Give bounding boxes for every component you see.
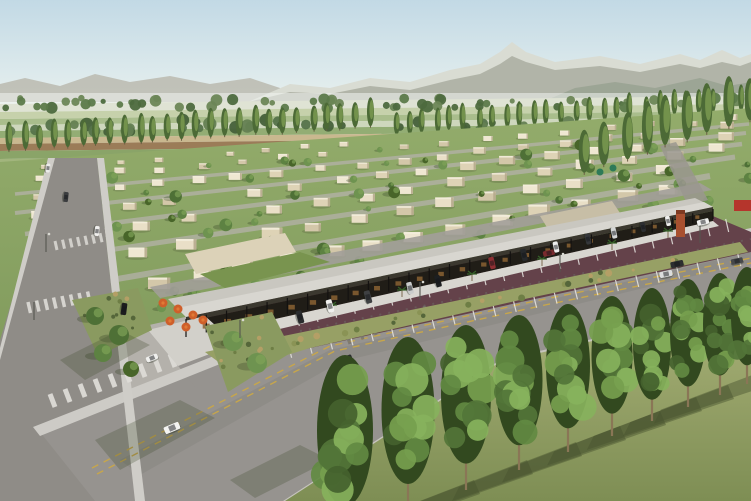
- round-tree-highlight: [128, 232, 134, 238]
- distant-tree: [477, 99, 484, 106]
- house-roof-edge: [670, 138, 685, 140]
- cafe-umbrella-top: [191, 313, 194, 316]
- monument-sign: [676, 210, 685, 237]
- house-shaded-side: [324, 165, 325, 170]
- house-shaded-side: [722, 143, 724, 151]
- storefront-glow: [503, 258, 508, 262]
- house-roof-edge: [362, 240, 382, 242]
- house-shaded-side: [144, 248, 147, 258]
- car-glass: [64, 195, 68, 200]
- street-light-head: [48, 233, 51, 236]
- shrub: [258, 347, 263, 352]
- crosswalk-stripe: [55, 241, 57, 250]
- shrub: [271, 347, 274, 350]
- house-roof-edge: [483, 136, 492, 137]
- shrub: [219, 359, 222, 362]
- poplar-highlight: [663, 100, 670, 133]
- cafe-umbrella-top: [184, 325, 187, 328]
- distant-tree: [241, 119, 254, 132]
- house-shaded-side: [163, 168, 164, 173]
- architectural-rendering: [0, 0, 751, 501]
- poplar-foliage: [467, 419, 489, 441]
- house-shaded-side: [280, 205, 282, 213]
- rendering-canvas: [0, 0, 751, 501]
- poplar-foliage: [689, 337, 703, 351]
- house-roof-edge: [148, 278, 170, 280]
- storefront-glow: [331, 295, 337, 300]
- round-tree-highlight: [558, 197, 562, 201]
- shrub: [605, 270, 612, 277]
- house-shaded-side: [300, 183, 302, 190]
- cafe-umbrella-top: [201, 318, 204, 321]
- distant-tree: [62, 97, 70, 105]
- shrub: [125, 296, 130, 301]
- round-tree-highlight: [118, 327, 128, 337]
- distant-tree: [393, 103, 401, 111]
- poplar-foliage: [643, 350, 661, 368]
- house-shaded-side: [124, 161, 125, 165]
- house-roof-edge: [538, 168, 553, 169]
- house-shaded-side: [194, 214, 196, 222]
- poplar-foliage: [674, 363, 689, 378]
- distant-tree: [310, 98, 317, 105]
- poplar-highlight: [255, 108, 259, 127]
- round-tree-highlight: [102, 345, 111, 354]
- house-shaded-side: [426, 169, 428, 175]
- poplar-foliage: [641, 372, 660, 391]
- poplar-highlight: [268, 111, 272, 128]
- round-tree-highlight: [111, 173, 117, 179]
- round-tree-highlight: [307, 159, 311, 163]
- shrub: [221, 364, 226, 369]
- house-roof-edge: [528, 204, 550, 206]
- distant-tree: [186, 103, 195, 112]
- round-tree-highlight: [368, 206, 371, 209]
- crosswalk-stripe: [54, 298, 57, 309]
- crosswalk-stripe: [85, 236, 87, 245]
- poplar-foliage: [554, 364, 574, 384]
- distant-tree: [33, 103, 41, 111]
- poplar-highlight: [560, 104, 564, 119]
- round-tree-highlight: [442, 161, 447, 166]
- house-roof-edge: [154, 168, 164, 169]
- round-tree-highlight: [225, 219, 231, 225]
- house-shaded-side: [204, 176, 206, 183]
- house-roof-edge: [114, 168, 125, 169]
- storefront-glow: [460, 267, 465, 271]
- street-light-head: [562, 253, 565, 256]
- shrub: [111, 315, 115, 319]
- distant-tree: [318, 93, 329, 104]
- house-roof-edge: [152, 180, 164, 181]
- round-tree-highlight: [639, 183, 642, 186]
- crosswalk-stripe: [100, 233, 102, 242]
- house-roof-edge: [266, 205, 282, 207]
- round-tree-highlight: [116, 222, 121, 227]
- poplar-highlight: [124, 117, 128, 136]
- poplar-highlight: [534, 103, 538, 120]
- house-shaded-side: [505, 173, 507, 181]
- house-roof-edge: [340, 142, 349, 143]
- house-roof-edge: [400, 144, 409, 145]
- house-shaded-side: [451, 197, 454, 207]
- house-shaded-side: [448, 141, 449, 146]
- house-roof-edge: [460, 162, 476, 164]
- poplar-foliage: [328, 399, 358, 429]
- poplar-highlight: [313, 108, 317, 125]
- poplar-foliage: [601, 376, 624, 399]
- shrub: [118, 299, 123, 304]
- round-tree-highlight: [425, 158, 428, 161]
- house-shaded-side: [411, 187, 413, 194]
- round-tree-highlight: [292, 160, 296, 164]
- poplar-highlight: [109, 120, 113, 137]
- house-roof-edge: [718, 132, 734, 134]
- house-roof-edge: [337, 176, 350, 177]
- house-shaded-side: [281, 170, 283, 177]
- house-roof-edge: [288, 183, 302, 184]
- poplar-foliage: [673, 285, 686, 298]
- distant-tree: [510, 98, 515, 103]
- house-roof-edge: [566, 179, 583, 181]
- monument-sign-cap: [676, 210, 685, 214]
- round-tree-highlight: [130, 362, 138, 370]
- house-roof-edge: [544, 151, 560, 153]
- street-light-head: [242, 319, 245, 322]
- distant-tree: [399, 94, 409, 104]
- distant-tree: [153, 95, 160, 102]
- house-shaded-side: [308, 144, 309, 149]
- round-tree-highlight: [527, 161, 531, 165]
- shrub: [113, 291, 118, 296]
- distant-tree: [261, 97, 270, 106]
- house-shaded-side: [162, 158, 163, 162]
- poplar-highlight: [8, 124, 12, 143]
- house-shaded-side: [387, 171, 389, 178]
- poplar-foliage: [672, 320, 691, 339]
- house-shaded-side: [610, 134, 612, 141]
- poplar-highlight: [616, 99, 620, 113]
- round-tree-highlight: [589, 164, 594, 169]
- green-umbrella: [610, 165, 617, 172]
- cafe-umbrella-top: [176, 307, 179, 310]
- house-roof-edge: [128, 248, 147, 250]
- round-tree-highlight: [393, 187, 399, 193]
- poplar-highlight: [479, 110, 483, 125]
- house-roof-edge: [445, 224, 465, 226]
- distant-tree: [566, 96, 575, 105]
- house-roof-edge: [305, 223, 321, 225]
- poplar-highlight: [705, 88, 712, 121]
- round-tree-highlight: [256, 355, 266, 365]
- round-tree-highlight: [294, 191, 299, 196]
- shrub: [588, 278, 593, 283]
- poplar-highlight: [140, 116, 144, 136]
- distant-tree: [483, 100, 491, 108]
- house-roof-edge: [193, 176, 206, 177]
- house-shaded-side: [373, 194, 375, 202]
- poplar-highlight: [38, 127, 42, 143]
- poplar-highlight: [602, 126, 609, 155]
- poplar-foliage: [337, 364, 368, 395]
- house-roof-edge: [117, 161, 124, 162]
- car-glass: [95, 229, 99, 234]
- house-shaded-side: [736, 114, 738, 120]
- house-roof-edge: [314, 198, 330, 200]
- poplar-highlight: [588, 99, 592, 115]
- house-shaded-side: [124, 168, 126, 174]
- house-shaded-side: [630, 173, 632, 181]
- shrub: [391, 321, 395, 325]
- house-roof-edge: [278, 154, 289, 155]
- poplar-foliage: [444, 427, 465, 448]
- house-roof-edge: [518, 144, 529, 145]
- shrub: [131, 316, 136, 321]
- house-roof-edge: [123, 203, 137, 204]
- house-shaded-side: [527, 134, 528, 139]
- round-tree-highlight: [181, 210, 186, 215]
- poplar-highlight: [518, 104, 522, 121]
- poplar-foliage: [719, 278, 735, 294]
- round-tree-highlight: [400, 233, 405, 238]
- distant-tree: [301, 120, 311, 130]
- house-roof-edge: [473, 147, 485, 148]
- storefront-glow: [374, 286, 380, 290]
- poplar-foliage: [500, 331, 518, 349]
- poplar-highlight: [462, 105, 466, 123]
- shrub: [115, 313, 118, 316]
- shrub: [131, 327, 134, 330]
- crosswalk-stripe: [70, 238, 72, 247]
- shrub: [342, 330, 348, 336]
- house-shaded-side: [233, 152, 234, 156]
- house-roof-edge: [560, 131, 570, 132]
- house-roof-edge: [492, 173, 507, 175]
- house-shaded-side: [732, 122, 734, 129]
- house-shaded-side: [135, 203, 137, 210]
- house-roof-edge: [397, 206, 414, 208]
- poplar-highlight: [326, 105, 330, 123]
- shrub: [260, 315, 265, 320]
- house-roof-edge: [238, 160, 247, 161]
- round-tree-highlight: [146, 190, 149, 193]
- poplar-highlight: [180, 114, 184, 132]
- round-tree-highlight: [652, 144, 657, 149]
- shrub: [598, 270, 603, 275]
- shrub: [354, 327, 360, 333]
- poplar-highlight: [409, 113, 413, 128]
- shrub: [480, 298, 485, 303]
- storefront-glow: [288, 305, 294, 310]
- shrub: [313, 333, 320, 340]
- crosswalk-stripe: [45, 299, 48, 310]
- house-roof-edge: [416, 169, 428, 170]
- distant-tree: [175, 102, 184, 111]
- house-shaded-side: [269, 148, 270, 152]
- poplar-highlight: [421, 111, 425, 127]
- house-roof-edge: [262, 148, 270, 149]
- house-roof-edge: [606, 125, 616, 126]
- house-shaded-side: [653, 121, 654, 126]
- house-shaded-side: [326, 152, 327, 157]
- distant-tree: [70, 120, 79, 129]
- poplar-highlight: [740, 87, 744, 105]
- shrub: [597, 278, 601, 282]
- house-shaded-side: [162, 180, 164, 186]
- house-shaded-side: [319, 223, 321, 231]
- house-shaded-side: [484, 147, 486, 153]
- house-shaded-side: [568, 131, 569, 136]
- house-roof-edge: [115, 185, 126, 186]
- crosswalk-stripe: [63, 240, 65, 249]
- poplar-highlight: [238, 110, 242, 129]
- distant-tree: [269, 100, 275, 106]
- round-tree-highlight: [207, 229, 212, 234]
- round-tree-highlight: [546, 190, 550, 194]
- round-tree-highlight: [254, 219, 258, 223]
- house-roof-edge: [399, 158, 412, 159]
- house-shaded-side: [580, 179, 582, 188]
- house-roof-edge: [315, 165, 325, 166]
- poplar-highlight: [396, 114, 400, 129]
- distant-tree: [117, 101, 124, 108]
- distant-tree: [211, 94, 223, 106]
- house-roof-edge: [518, 134, 528, 135]
- cafe-umbrella-top: [161, 301, 164, 304]
- poplar-foliage: [596, 349, 620, 373]
- house-roof-edge: [560, 140, 573, 141]
- house-shaded-side: [411, 206, 413, 215]
- poplar-foliage: [543, 329, 565, 351]
- house-roof-edge: [262, 228, 283, 230]
- shrub: [465, 302, 471, 308]
- house-shaded-side: [491, 136, 492, 141]
- house-roof-edge: [133, 222, 150, 224]
- shrub: [394, 317, 398, 321]
- house-roof-edge: [229, 173, 242, 174]
- poplar-highlight: [83, 122, 87, 139]
- house-roof-edge: [709, 143, 725, 145]
- house-shaded-side: [240, 173, 242, 180]
- round-tree-highlight: [747, 162, 750, 165]
- house-roof-edge: [499, 156, 515, 158]
- house-roof-edge: [352, 214, 368, 216]
- poplar-highlight: [628, 95, 632, 113]
- shrub: [518, 294, 525, 301]
- house-roof-edge: [318, 152, 327, 153]
- poplar-highlight: [354, 105, 358, 122]
- house-roof-edge: [435, 197, 453, 199]
- poplar-foliage: [324, 466, 351, 493]
- storefront-glow: [395, 281, 401, 285]
- round-tree-highlight: [208, 163, 211, 166]
- house-roof-edge: [399, 187, 413, 188]
- house-shaded-side: [462, 177, 464, 186]
- shrub: [210, 331, 214, 335]
- house-shaded-side: [615, 125, 616, 130]
- house-shaded-side: [124, 185, 125, 190]
- red-banner-sign: [734, 200, 751, 211]
- round-tree-highlight: [175, 191, 181, 197]
- distant-tree: [78, 95, 84, 101]
- poplar-foliage: [707, 333, 723, 349]
- poplar-highlight: [281, 110, 285, 127]
- round-tree-highlight: [259, 211, 262, 214]
- house-shaded-side: [474, 162, 476, 170]
- shrub: [106, 296, 111, 301]
- poplar-highlight: [194, 112, 198, 131]
- house-shaded-side: [246, 160, 247, 164]
- house-shaded-side: [147, 222, 149, 231]
- round-tree-highlight: [358, 189, 363, 194]
- poplar-highlight: [646, 106, 653, 140]
- poplar-highlight: [491, 107, 495, 123]
- shrub: [417, 310, 422, 315]
- house-shaded-side: [347, 142, 348, 147]
- round-tree-highlight: [148, 199, 151, 202]
- shrub: [565, 281, 571, 287]
- poplar-highlight: [604, 100, 608, 115]
- crosswalk-stripe: [28, 302, 31, 313]
- poplar-foliage: [551, 395, 569, 413]
- poplar-highlight: [94, 120, 98, 138]
- shrub: [257, 336, 262, 341]
- round-tree-highlight: [481, 191, 484, 194]
- house-shaded-side: [410, 158, 412, 165]
- poplar-highlight: [626, 117, 633, 148]
- shrub: [297, 336, 303, 342]
- round-tree-highlight: [525, 150, 531, 156]
- street-light-head: [422, 281, 425, 284]
- shrub: [233, 351, 236, 354]
- green-umbrella: [597, 169, 604, 176]
- distant-tree: [101, 99, 106, 104]
- poplar-highlight: [698, 92, 702, 108]
- round-tree-highlight: [623, 170, 629, 176]
- house-roof-edge: [176, 239, 196, 241]
- poplar-highlight: [727, 81, 734, 114]
- poplar-foliage: [392, 387, 412, 407]
- house-shaded-side: [260, 189, 262, 197]
- poplar-highlight: [295, 110, 299, 126]
- crosswalk-stripe: [78, 237, 80, 246]
- round-tree-highlight: [708, 197, 713, 202]
- poplar-foliage: [318, 444, 342, 468]
- shrub: [296, 341, 300, 345]
- house-shaded-side: [732, 132, 734, 140]
- poplar-foliage: [568, 386, 587, 405]
- round-tree-highlight: [692, 156, 695, 159]
- poplar-highlight: [369, 100, 373, 119]
- house-shaded-side: [696, 121, 697, 126]
- poplar-highlight: [686, 96, 693, 129]
- poplar-foliage: [690, 298, 704, 312]
- storefront-glow: [310, 300, 316, 305]
- poplar-highlight: [545, 102, 549, 119]
- house-shaded-side: [537, 185, 539, 194]
- poplar-highlight: [67, 122, 71, 140]
- poplar-foliage: [601, 306, 623, 328]
- poplar-foliage: [512, 364, 535, 387]
- distant-tree: [383, 102, 390, 109]
- house-shaded-side: [447, 154, 449, 160]
- house-roof-edge: [523, 185, 540, 187]
- poplar-highlight: [583, 134, 590, 162]
- poplar-highlight: [151, 119, 155, 136]
- poplar-highlight: [166, 116, 170, 133]
- round-tree-highlight: [284, 157, 288, 161]
- house-roof-edge: [270, 170, 284, 171]
